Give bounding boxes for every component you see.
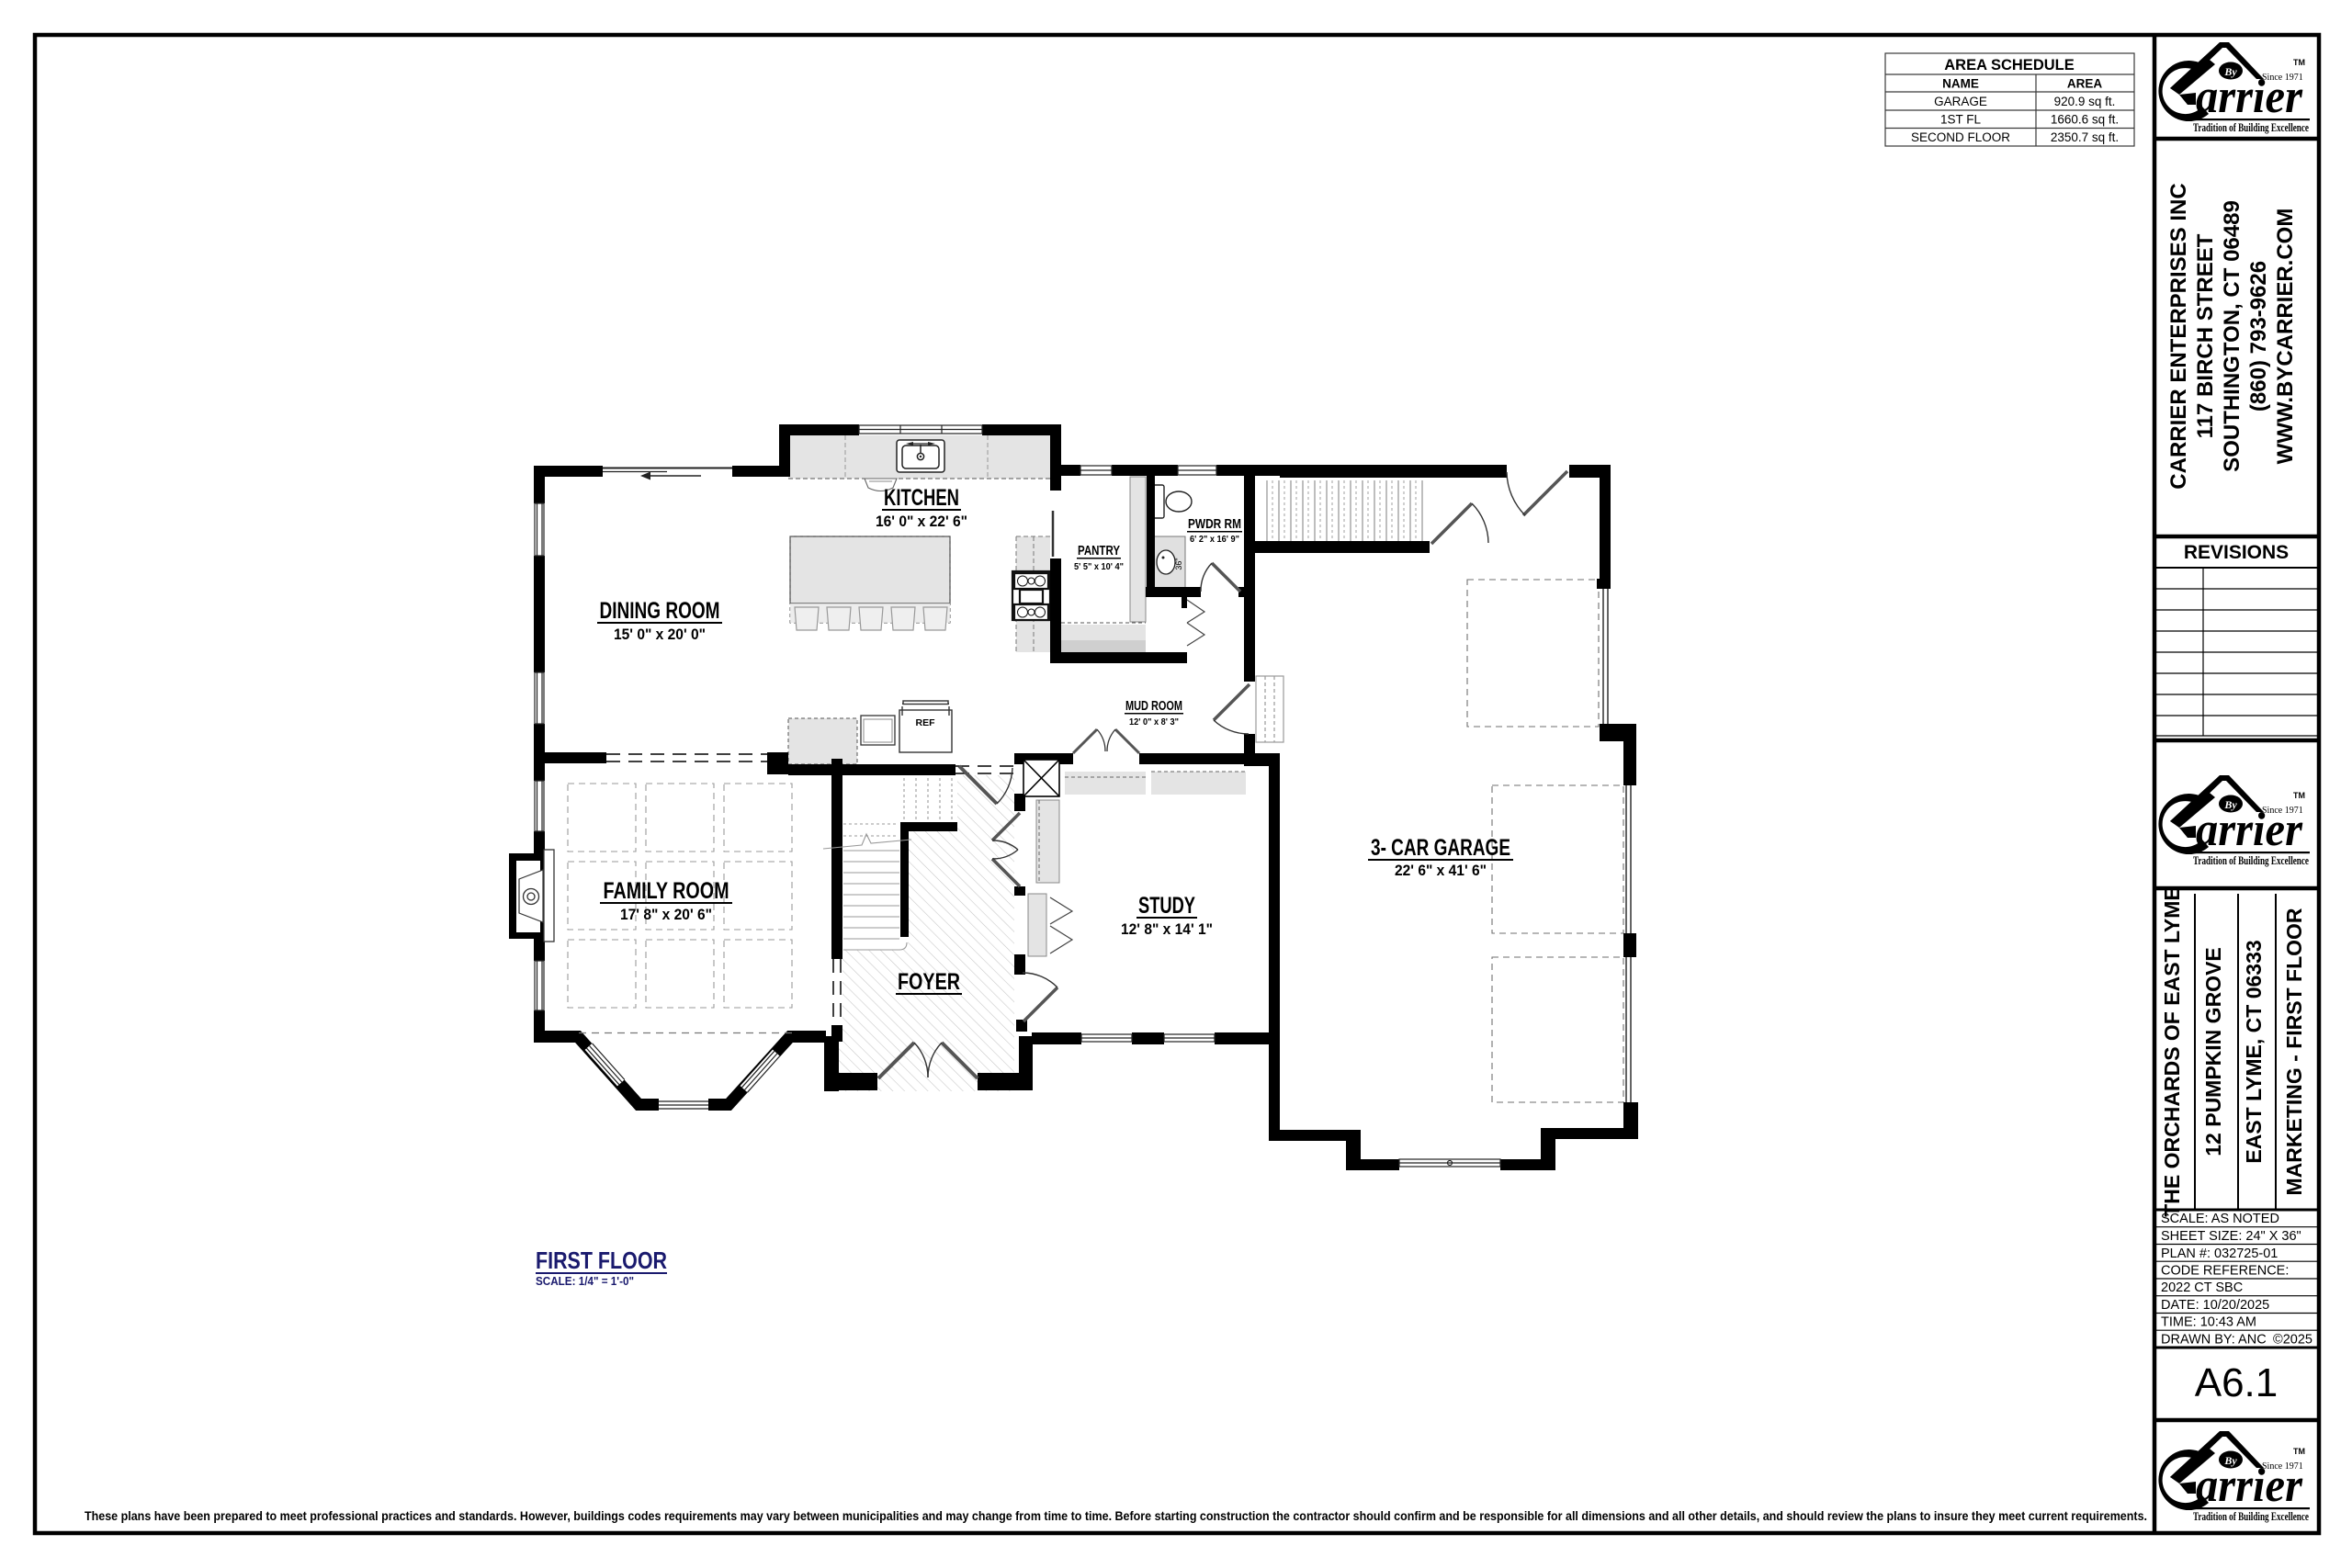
svg-text:A6.1: A6.1 <box>2195 1360 2278 1405</box>
svg-text:These plans have been prepared: These plans have been prepared to meet p… <box>85 1509 2147 1523</box>
svg-text:SCALE: 1/4" = 1'-0": SCALE: 1/4" = 1'-0" <box>536 1275 634 1288</box>
svg-text:(860) 793-9626: (860) 793-9626 <box>2246 261 2271 412</box>
svg-text:©2025: ©2025 <box>2273 1333 2312 1348</box>
svg-text:STUDY: STUDY <box>1138 893 1195 919</box>
svg-text:FIRST FLOOR: FIRST FLOOR <box>536 1247 667 1274</box>
svg-text:1660.6 sq ft.: 1660.6 sq ft. <box>2051 113 2119 127</box>
svg-text:22' 6" x 41' 6": 22' 6" x 41' 6" <box>1395 862 1487 879</box>
svg-text:5' 5" x 10' 4": 5' 5" x 10' 4" <box>1074 561 1124 572</box>
svg-text:AREA SCHEDULE: AREA SCHEDULE <box>1944 57 2074 73</box>
svg-text:REVISIONS: REVISIONS <box>2184 542 2289 563</box>
svg-text:6' 2" x 16' 9": 6' 2" x 16' 9" <box>1190 534 1239 545</box>
svg-text:1ST FL: 1ST FL <box>1940 113 1982 127</box>
svg-text:FOYER: FOYER <box>898 969 960 995</box>
svg-text:CODE REFERENCE:: CODE REFERENCE: <box>2161 1264 2289 1279</box>
svg-text:2350.7 sq ft.: 2350.7 sq ft. <box>2051 130 2119 144</box>
svg-text:SHEET SIZE: 24" X 36": SHEET SIZE: 24" X 36" <box>2161 1229 2301 1244</box>
svg-text:117 BIRCH STREET: 117 BIRCH STREET <box>2193 233 2218 438</box>
svg-text:SOUTHINGTON, CT 06489: SOUTHINGTON, CT 06489 <box>2220 200 2245 472</box>
svg-text:SCALE: AS NOTED: SCALE: AS NOTED <box>2161 1212 2279 1226</box>
svg-text:920.9 sq ft.: 920.9 sq ft. <box>2054 95 2116 108</box>
svg-text:FAMILY ROOM: FAMILY ROOM <box>604 878 729 904</box>
svg-text:GARAGE: GARAGE <box>1934 95 1987 108</box>
svg-text:PLAN #: 032725-01: PLAN #: 032725-01 <box>2161 1247 2278 1261</box>
svg-text:NAME: NAME <box>1942 77 1979 91</box>
svg-text:12' 0" x 8' 3": 12' 0" x 8' 3" <box>1129 716 1179 728</box>
svg-text:TIME: 10:43 AM: TIME: 10:43 AM <box>2161 1315 2256 1330</box>
svg-text:REF: REF <box>916 717 936 728</box>
svg-text:12 PUMPKIN GROVE: 12 PUMPKIN GROVE <box>2201 947 2225 1156</box>
svg-text:CARRIER ENTERPRISES INC: CARRIER ENTERPRISES INC <box>2166 183 2191 489</box>
svg-text:EAST LYME, CT 06333: EAST LYME, CT 06333 <box>2242 940 2266 1163</box>
svg-text:DATE: 10/20/2025: DATE: 10/20/2025 <box>2161 1298 2269 1313</box>
svg-text:12' 8" x 14' 1": 12' 8" x 14' 1" <box>1121 920 1213 938</box>
svg-text:DRAWN BY: ANC: DRAWN BY: ANC <box>2161 1333 2267 1348</box>
svg-text:MARKETING - FIRST FLOOR: MARKETING - FIRST FLOOR <box>2282 908 2306 1195</box>
svg-text:DINING ROOM: DINING ROOM <box>600 598 720 624</box>
svg-text:WWW.BYCARRIER.COM: WWW.BYCARRIER.COM <box>2273 209 2298 465</box>
svg-text:3- CAR GARAGE: 3- CAR GARAGE <box>1371 835 1510 861</box>
svg-text:SECOND FLOOR: SECOND FLOOR <box>1911 130 2010 144</box>
svg-text:PWDR RM: PWDR RM <box>1188 517 1241 532</box>
svg-text:36": 36" <box>1174 558 1183 570</box>
svg-text:2022 CT SBC: 2022 CT SBC <box>2161 1280 2243 1295</box>
svg-text:MUD ROOM: MUD ROOM <box>1125 699 1182 714</box>
svg-text:KITCHEN: KITCHEN <box>884 485 959 511</box>
svg-text:15' 0" x 20' 0": 15' 0" x 20' 0" <box>614 626 706 643</box>
svg-text:PANTRY: PANTRY <box>1078 544 1120 558</box>
svg-text:17' 8" x 20' 6": 17' 8" x 20' 6" <box>620 906 712 923</box>
svg-text:AREA: AREA <box>2067 77 2103 91</box>
svg-text:THE ORCHARDS OF EAST LYME: THE ORCHARDS OF EAST LYME <box>2160 886 2184 1217</box>
svg-text:16' 0" x 22' 6": 16' 0" x 22' 6" <box>876 513 967 530</box>
